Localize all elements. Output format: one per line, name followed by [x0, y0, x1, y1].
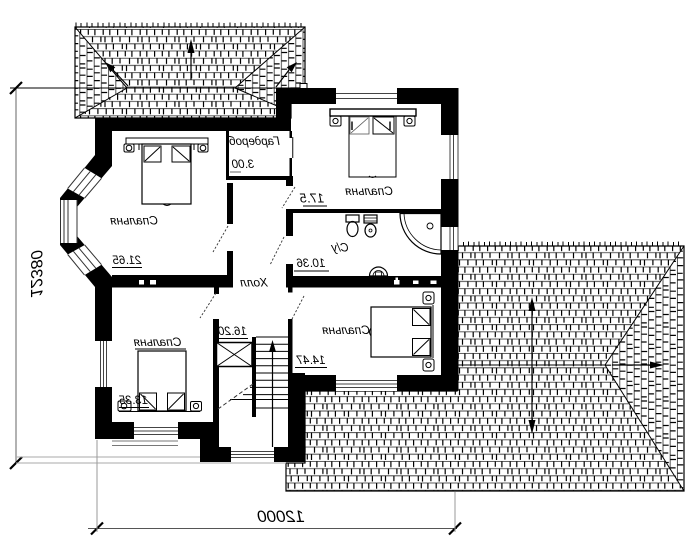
- svg-text:10.36: 10.36: [296, 258, 325, 270]
- svg-text:13.35: 13.35: [119, 395, 148, 407]
- svg-text:21.65: 21.65: [112, 255, 142, 267]
- svg-text:17.5: 17.5: [300, 192, 324, 206]
- svg-text:14.47: 14.47: [296, 355, 325, 367]
- svg-text:Холл: Холл: [240, 276, 269, 290]
- svg-text:С/у: С/у: [330, 243, 349, 255]
- svg-text:12000: 12000: [257, 507, 305, 526]
- svg-text:Спальня: Спальня: [109, 214, 157, 228]
- svg-text:3.00: 3.00: [231, 159, 254, 171]
- svg-text:Спальня: Спальня: [133, 335, 181, 349]
- svg-text:12380: 12380: [27, 250, 46, 298]
- svg-text:Гардероб: Гардероб: [229, 136, 280, 148]
- svg-text:Спальня: Спальня: [321, 323, 369, 337]
- svg-text:16.20: 16.20: [218, 326, 247, 338]
- svg-text:Спальня: Спальня: [344, 184, 392, 198]
